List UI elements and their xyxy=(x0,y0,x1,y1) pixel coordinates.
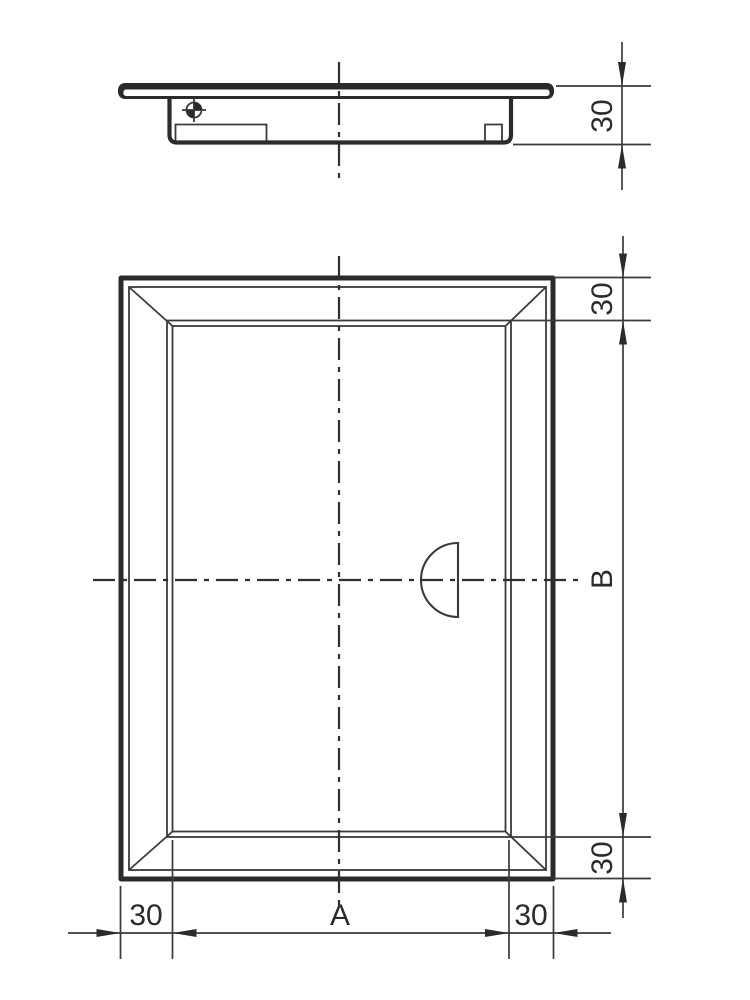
dim-label-side-thickness: 30 xyxy=(586,99,619,132)
corner-block xyxy=(485,125,502,141)
dimension-chain-right: 30 B 30 xyxy=(511,236,651,918)
miter-lines xyxy=(130,288,546,870)
dim-label-height-B: B xyxy=(586,569,619,589)
dim-label-frame-top: 30 xyxy=(586,282,619,315)
inner-step-recess xyxy=(176,125,267,141)
dim-label-width-A: A xyxy=(330,899,350,932)
dim-label-frame-bottom: 30 xyxy=(586,841,619,874)
side-section-view: 30 xyxy=(118,42,651,190)
dim-label-frame-right: 30 xyxy=(514,899,547,932)
front-view: 30 B 30 30 A 30 xyxy=(68,236,651,959)
dim-label-frame-left: 30 xyxy=(129,899,162,932)
dimension-chain-bottom: 30 A 30 xyxy=(68,840,611,959)
flange-profile xyxy=(118,83,554,99)
target-crosshair-icon xyxy=(182,98,206,122)
panel-body-profile xyxy=(170,98,512,143)
outer-frame xyxy=(121,278,553,879)
technical-drawing-page: 30 xyxy=(0,0,750,1000)
rim-edge xyxy=(129,287,546,870)
dimension-side-thickness: 30 xyxy=(513,42,651,190)
technical-drawing-canvas: 30 xyxy=(0,0,750,1000)
